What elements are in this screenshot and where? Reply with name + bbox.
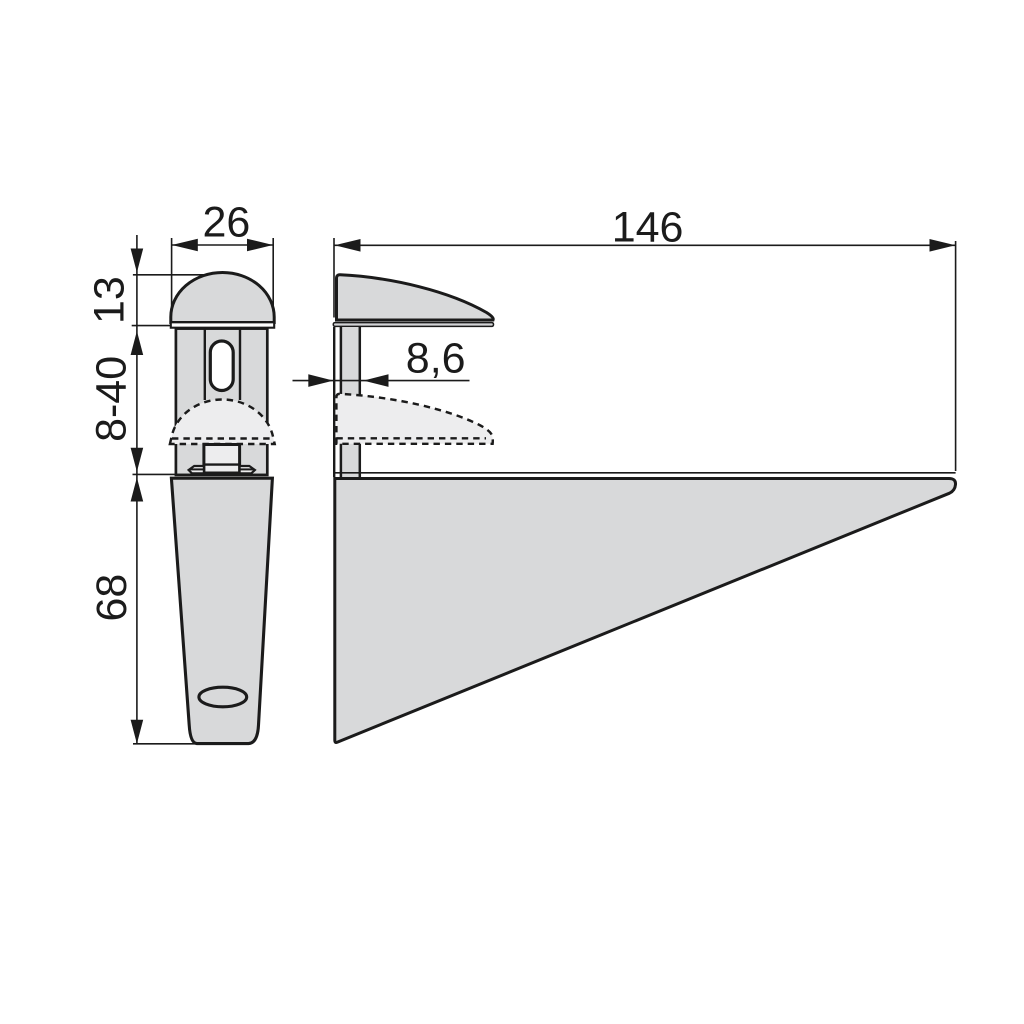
svg-text:8-40: 8-40 bbox=[88, 356, 136, 442]
svg-text:26: 26 bbox=[202, 198, 250, 246]
svg-text:13: 13 bbox=[86, 276, 134, 324]
svg-text:8,6: 8,6 bbox=[406, 334, 466, 382]
svg-text:68: 68 bbox=[88, 574, 136, 622]
svg-text:146: 146 bbox=[612, 203, 684, 251]
